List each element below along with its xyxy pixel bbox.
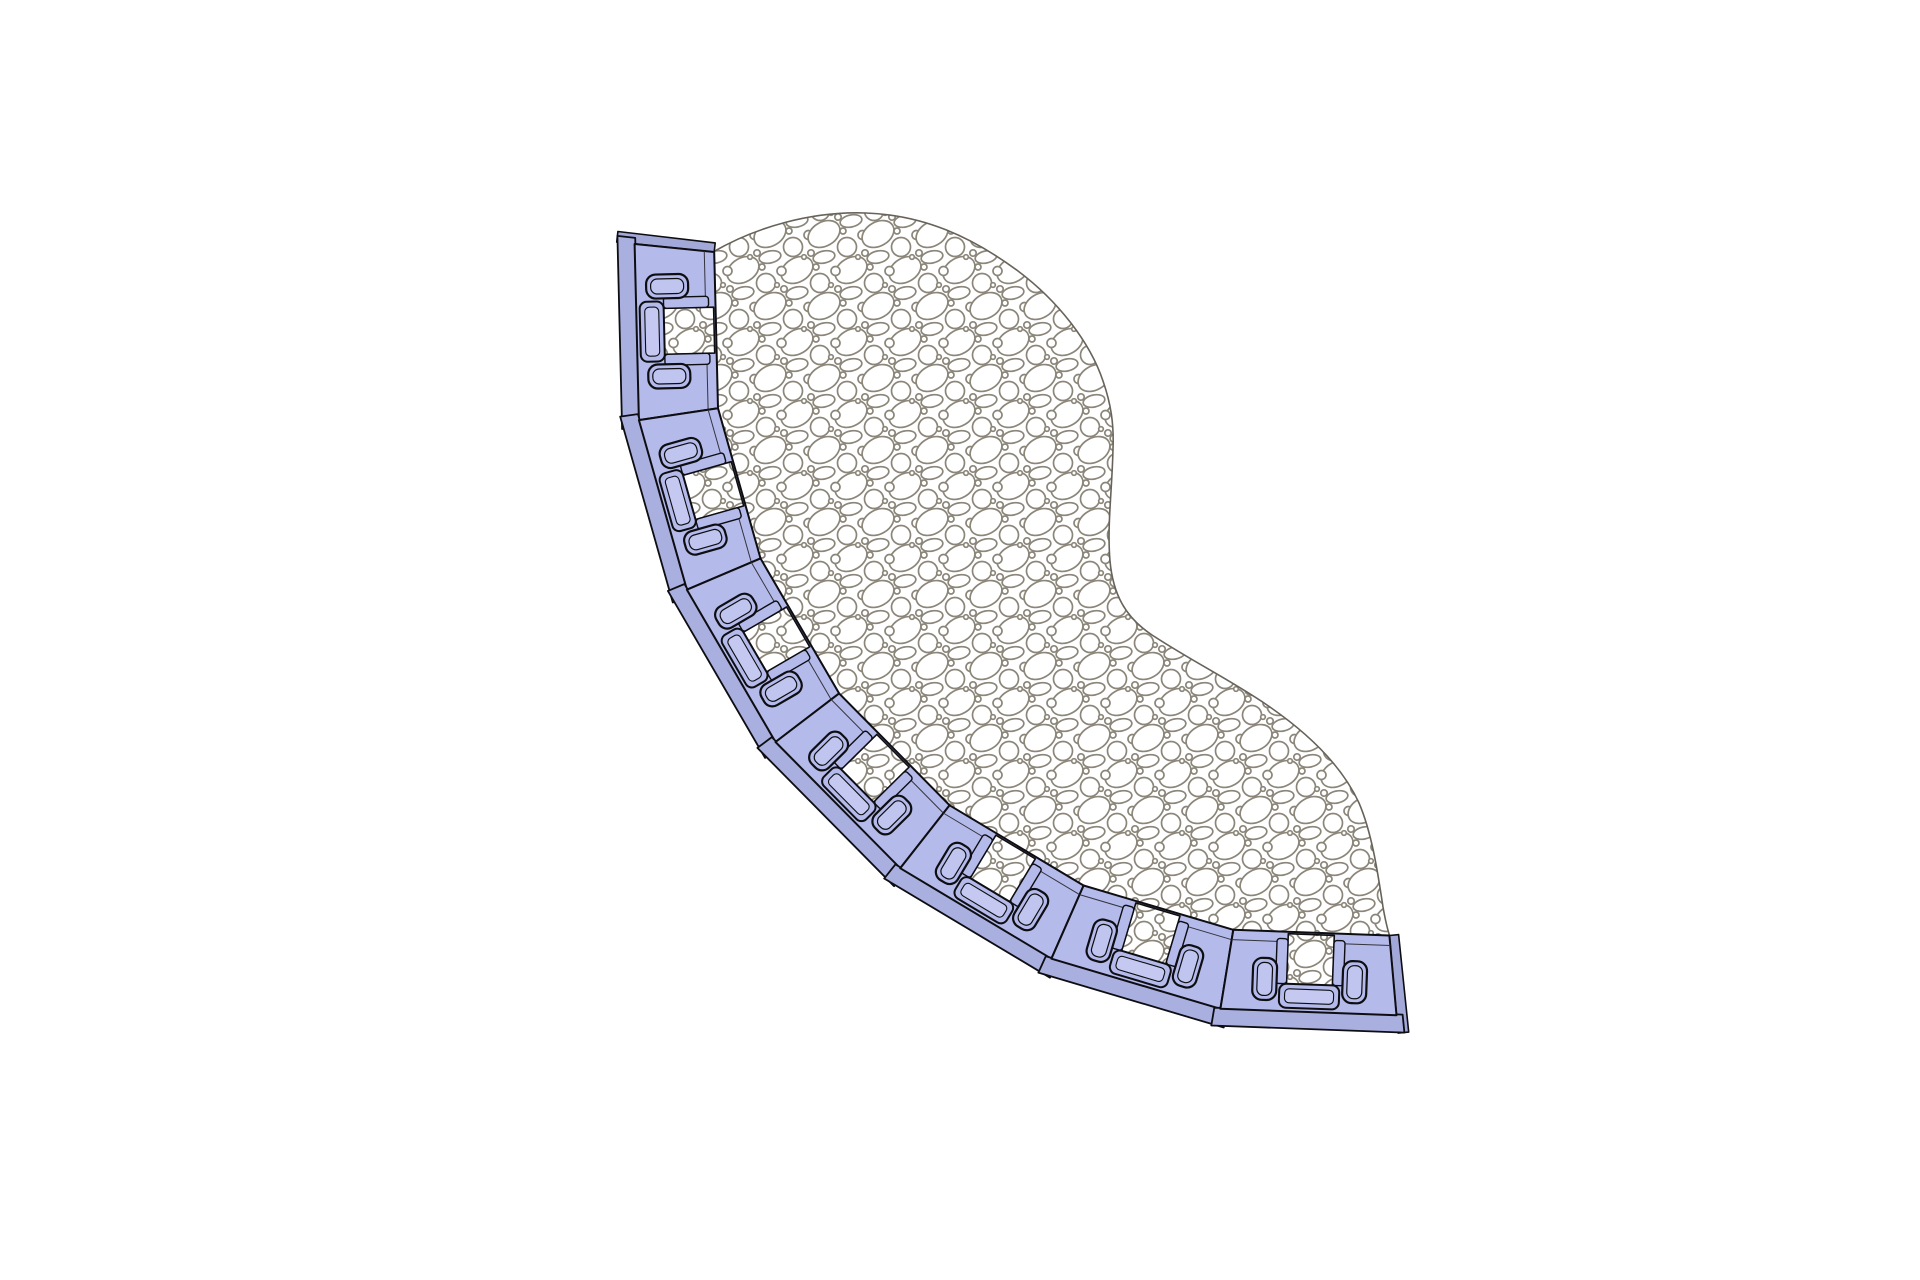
stake-slot-recess (653, 368, 686, 384)
cad-drawing (0, 0, 1920, 1280)
cad-viewport (0, 0, 1920, 1280)
block-bridge-recess (1284, 989, 1333, 1005)
edging-block (617, 232, 718, 430)
edging-block (1211, 930, 1408, 1033)
stake-slot-recess (1257, 962, 1273, 996)
stake-slot-recess (1346, 965, 1362, 999)
block-bridge-recess (645, 307, 660, 356)
block-handle-opening (1286, 934, 1334, 989)
gravel-surface-outline (710, 213, 1390, 940)
block-handle-opening (661, 307, 715, 354)
stake-slot-recess (650, 278, 683, 294)
gravel-surface (710, 213, 1390, 940)
